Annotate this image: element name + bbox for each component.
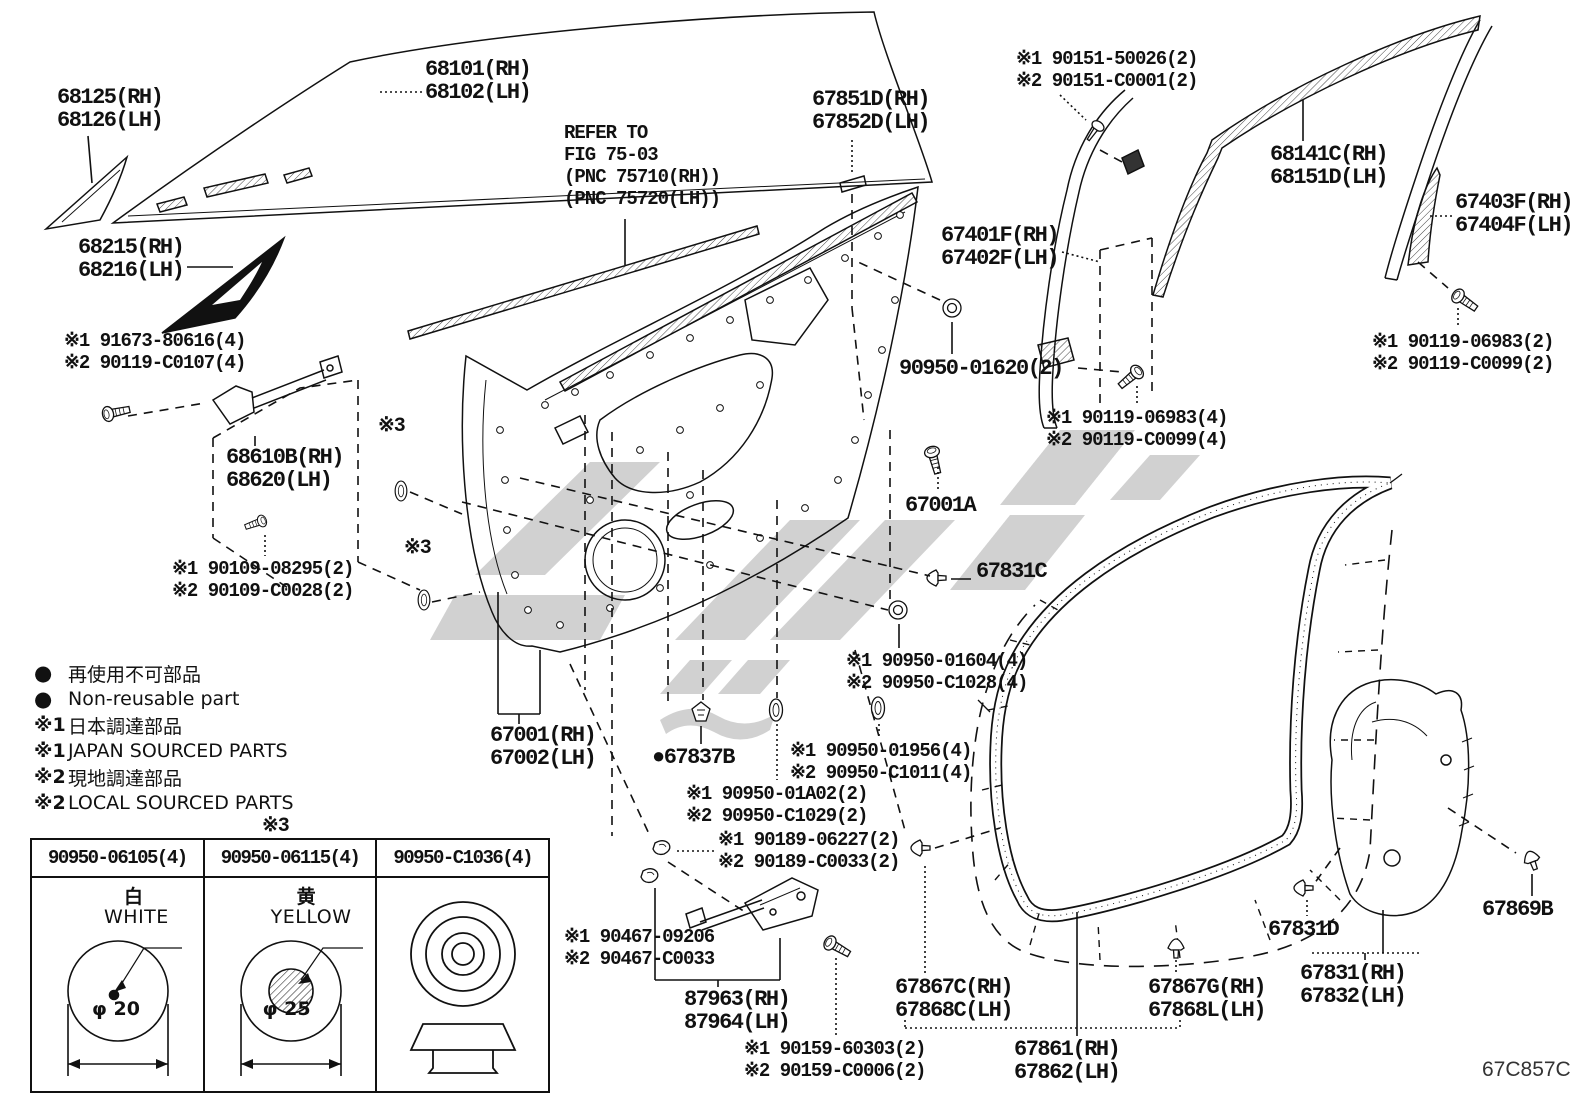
label-68101[interactable]: 68101(RH)68102(LH) (425, 58, 530, 104)
label-67831C[interactable]: 67831C (976, 560, 1046, 583)
grommet-table: 90950-06105(4) 白 WHITE φ 20 90950-06115(… (30, 838, 550, 1093)
clip-67867C-icon (911, 840, 930, 856)
label-90950-01620[interactable]: 90950-01620(2) (899, 357, 1063, 380)
label-87963[interactable]: 87963(RH)87964(LH) (684, 988, 789, 1034)
clip-67837B-icon (692, 702, 710, 721)
label-90950-01A02[interactable]: ※1 90950-01A02(2)※2 90950-C1029(2) (686, 783, 867, 827)
screw-90189-icon (653, 841, 670, 855)
label-67869B[interactable]: 67869B (1482, 898, 1552, 921)
marker-x3-b: ※3 (404, 534, 431, 560)
table-header: 90950-06105(4) (32, 840, 203, 878)
label-67001A[interactable]: 67001A (905, 494, 975, 517)
label-67867C[interactable]: 67867C(RH)67868C(LH) (895, 976, 1012, 1022)
label-67401F[interactable]: 67401F(RH)67402F(LH) (941, 224, 1058, 270)
grommet-x3-b-icon (418, 590, 430, 610)
bullet-icon: ● (34, 687, 68, 711)
clip-90467-icon (641, 869, 658, 883)
label-68125[interactable]: 68125(RH)68126(LH) (57, 86, 162, 132)
grommet-01604-icon (889, 601, 907, 619)
bolt-91673-icon (101, 402, 131, 422)
bolt-06983x4-icon (1115, 363, 1146, 392)
color-label-en: WHITE (104, 906, 169, 928)
legend-nonreusable-en: ●Non-reusable part (34, 686, 294, 712)
bolt-67001A-icon (923, 445, 945, 475)
grommet-x3-a-icon (395, 481, 407, 501)
color-label-en: YELLOW (271, 906, 352, 928)
label-67403F[interactable]: 67403F(RH)67404F(LH) (1455, 191, 1572, 237)
legend-japan-jp: ※1日本調達部品 (34, 712, 294, 738)
marker-x3-a: ※3 (378, 412, 405, 438)
label-90119-x4[interactable]: ※1 90119-06983(4)※2 90119-C0099(4) (1046, 407, 1227, 451)
color-label-jp: 黄 (297, 882, 316, 909)
drawing-code: 67C857C (1482, 1058, 1571, 1082)
vent-glass-drawing (46, 157, 127, 229)
label-68215[interactable]: 68215(RH)68216(LH) (78, 236, 183, 282)
legend-nonreusable-jp: ●再使用不可部品 (34, 660, 294, 686)
service-hole-cover-drawing (1330, 680, 1474, 916)
table-col-C1036: 90950-C1036(4) (377, 840, 548, 1091)
label-68141C[interactable]: 68141C(RH)68151D(LH) (1270, 143, 1387, 189)
label-91673[interactable]: ※1 91673-80616(4)※2 90119-C0107(4) (64, 330, 245, 374)
grommet-01620-icon (943, 299, 961, 317)
label-67831D[interactable]: 67831D (1268, 918, 1338, 941)
label-90189[interactable]: ※1 90189-06227(2)※2 90189-C0033(2) (718, 829, 899, 873)
legend: ●再使用不可部品 ●Non-reusable part ※1日本調達部品 ※1J… (34, 660, 294, 816)
belt-clip-drawing (840, 176, 866, 192)
table-marker-x3: ※3 (262, 812, 289, 838)
label-90950-01956[interactable]: ※1 90950-01956(4)※2 90950-C1011(4) (790, 740, 971, 784)
clip-67867G-icon (1168, 939, 1184, 958)
front-door-glass-drawing (113, 12, 932, 223)
clip-67831C-icon (927, 570, 946, 586)
label-90119-x2[interactable]: ※1 90119-06983(2)※2 90119-C0099(2) (1372, 331, 1553, 375)
diameter-label: φ 25 (263, 998, 311, 1020)
label-68610B[interactable]: 68610B(RH)68620(LH) (226, 446, 343, 492)
label-refer-to-fig[interactable]: REFER TOFIG 75-03(PNC 75710(RH))(PNC 757… (564, 122, 720, 210)
clip-90109-icon (243, 514, 268, 533)
label-90159[interactable]: ※1 90159-60303(2)※2 90159-C0006(2) (744, 1038, 925, 1082)
legend-local-en: ※2LOCAL SOURCED PARTS (34, 790, 294, 816)
clip-67831D-icon (1294, 880, 1313, 896)
table-col-06115: 90950-06115(4) 黄 YELLOW φ 25 (205, 840, 378, 1091)
label-67001[interactable]: 67001(RH)67002(LH) (490, 724, 595, 770)
table-header: 90950-C1036(4) (377, 840, 548, 878)
door-lock-check-drawing (686, 878, 818, 930)
diameter-label: φ 20 (92, 998, 140, 1020)
legend-local-jp: ※2現地調達部品 (34, 764, 294, 790)
label-90950-01604[interactable]: ※1 90950-01604(4)※2 90950-C1028(4) (846, 650, 1027, 694)
label-67851D[interactable]: 67851D(RH)67852D(LH) (812, 88, 929, 134)
label-90151[interactable]: ※1 90151-50026(2)※2 90151-C0001(2) (1016, 48, 1197, 92)
label-90109[interactable]: ※1 90109-08295(2)※2 90109-C0028(2) (172, 558, 353, 602)
label-67861[interactable]: 67861(RH)67862(LH) (1014, 1038, 1119, 1084)
clip-67869B-icon (1521, 849, 1543, 872)
legend-japan-en: ※1JAPAN SOURCED PARTS (34, 738, 294, 764)
bolt-90159-icon (821, 934, 852, 961)
label-67831[interactable]: 67831(RH)67832(LH) (1300, 962, 1405, 1008)
table-header: 90950-06115(4) (205, 840, 376, 878)
grommet-01A02-icon (770, 699, 783, 721)
label-67867G[interactable]: 67867G(RH)67868L(LH) (1148, 976, 1265, 1022)
parts-diagram-page: 68125(RH)68126(LH) 68101(RH)68102(LH) 68… (0, 0, 1592, 1099)
label-67837B[interactable]: ●67837B (652, 746, 734, 769)
bolt-06983x2-icon (1449, 287, 1480, 315)
belt-molding-drawing (408, 226, 759, 339)
color-label-jp: 白 (124, 882, 143, 909)
grommet-plug-drawing (377, 876, 549, 1091)
label-90467[interactable]: ※1 90467-09206※2 90467-C0033 (564, 926, 714, 970)
table-col-06105: 90950-06105(4) 白 WHITE φ 20 (32, 840, 205, 1091)
bullet-icon: ● (34, 661, 68, 685)
screw-90151-icon (1083, 119, 1106, 144)
